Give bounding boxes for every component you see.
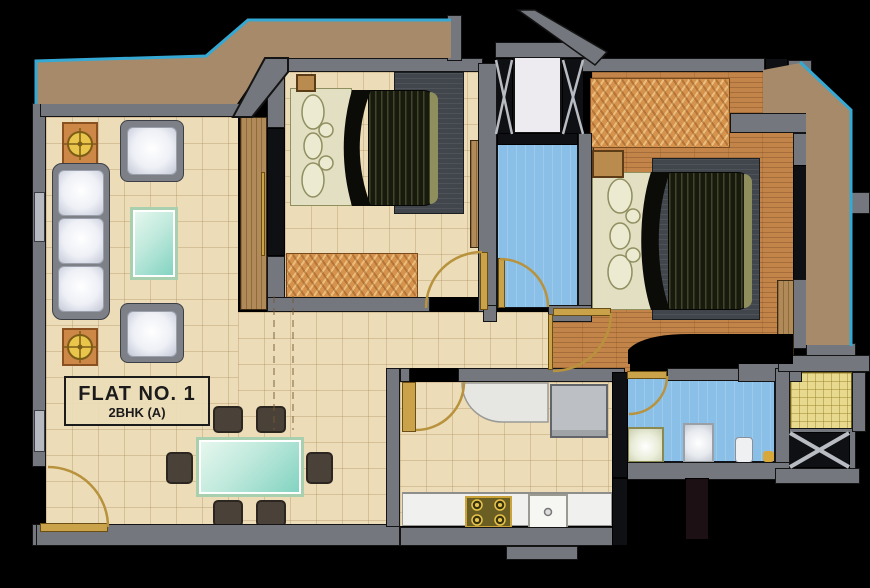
- wall-kitchen-top-right: [458, 368, 625, 382]
- duct-right: [562, 58, 584, 136]
- wall-master-right-upper: [793, 133, 807, 167]
- wall-bedroom1-left-mid: [267, 128, 285, 256]
- toilet-fixture: [735, 437, 753, 463]
- refrigerator: [550, 384, 608, 438]
- window-left-lower: [34, 410, 45, 452]
- bedroom1-door: [480, 252, 488, 310]
- wall-kitchen-right-upper: [612, 372, 628, 478]
- bath-door: [627, 371, 667, 379]
- wall-bottom-kitchen: [400, 527, 618, 546]
- bedroom1-blanket-edge: [430, 92, 438, 204]
- washbasin: [627, 427, 664, 463]
- terrace-door: [777, 280, 794, 364]
- master-door: [553, 308, 611, 316]
- wall-terrace-gap: [447, 15, 462, 61]
- wall-utility-right: [852, 372, 866, 432]
- passage-floor: [386, 312, 553, 368]
- wall-kitchen-top-left: [400, 368, 410, 382]
- dining-table: [196, 437, 304, 497]
- air-duct: [789, 432, 850, 468]
- dining-chair-4: [306, 452, 333, 484]
- wall-master-top-piece: [788, 60, 812, 78]
- terrace-right-outline: [800, 62, 851, 346]
- sofa-cushion-3: [58, 266, 104, 312]
- bedroom1-bedside-table: [296, 74, 316, 92]
- entrance-door: [40, 523, 108, 532]
- armchair-bottom-cushion: [127, 311, 177, 357]
- wall-bath-top: [667, 368, 740, 381]
- master-bedside-table: [592, 150, 624, 178]
- armchair-top-cushion: [127, 127, 177, 175]
- sofa-cushion-1: [58, 170, 104, 216]
- wall-right-stub: [848, 192, 870, 214]
- bedroom1-dresser: [286, 253, 418, 298]
- bedroom1-bed-sheet: [290, 88, 352, 206]
- toilet-door: [498, 258, 505, 308]
- shower-panel: [683, 423, 714, 463]
- wall-bottom-stub: [506, 546, 578, 560]
- wall-toilet-top: [497, 133, 578, 145]
- floor-plan: FLAT NO. 1 2BHK (A): [0, 0, 870, 588]
- wall-bedroom1-left-top: [267, 58, 285, 128]
- wall-living-top: [40, 103, 240, 117]
- master-mattress: [668, 172, 750, 310]
- window-left-upper: [34, 192, 45, 242]
- lift-shaft: [513, 56, 562, 134]
- window-master-top: [765, 58, 788, 72]
- side-table-bottom: [62, 328, 98, 366]
- dining-chair-5: [213, 500, 243, 527]
- bedroom1-mattress: [368, 90, 436, 206]
- side-table-top: [62, 122, 98, 165]
- flat-type: 2BHK (A): [108, 405, 165, 420]
- wall-kitchen-right-lower: [612, 478, 628, 546]
- wall-bedroom1-bottom: [267, 297, 430, 312]
- kitchen-door: [402, 382, 416, 432]
- wall-dining-kitchen: [386, 368, 400, 527]
- sofa-cushion-2: [58, 218, 104, 264]
- duct-left: [495, 58, 513, 136]
- dining-chair-2: [256, 406, 286, 433]
- flat-number: FLAT NO. 1: [78, 383, 195, 405]
- wall-dark-stub: [685, 478, 709, 540]
- wall-below-duct: [775, 468, 860, 484]
- wall-toilet-right: [578, 133, 592, 322]
- bath-accessory: [763, 451, 774, 462]
- wall-utility-top: [778, 355, 870, 372]
- dining-chair-6: [256, 500, 286, 527]
- flat-label: FLAT NO. 1 2BHK (A): [64, 376, 210, 426]
- common-toilet-floor: [497, 143, 578, 308]
- dining-chair-3: [166, 452, 193, 484]
- master-door-threshold: [548, 314, 553, 370]
- window-master-right: [793, 165, 807, 281]
- kitchen-sink: [528, 494, 568, 530]
- master-bed-sheet: [592, 172, 652, 310]
- wall-shaft-top: [495, 42, 592, 58]
- dining-chair-1: [213, 406, 243, 433]
- wall-master-top: [582, 58, 765, 72]
- wall-master-stub: [730, 113, 807, 133]
- master-dresser: [590, 78, 730, 148]
- wall-master-right-lower: [793, 279, 807, 349]
- master-blanket-edge: [744, 174, 752, 308]
- coffee-table: [130, 207, 178, 280]
- cabinet-handle: [261, 172, 265, 256]
- gas-stove: [465, 496, 512, 528]
